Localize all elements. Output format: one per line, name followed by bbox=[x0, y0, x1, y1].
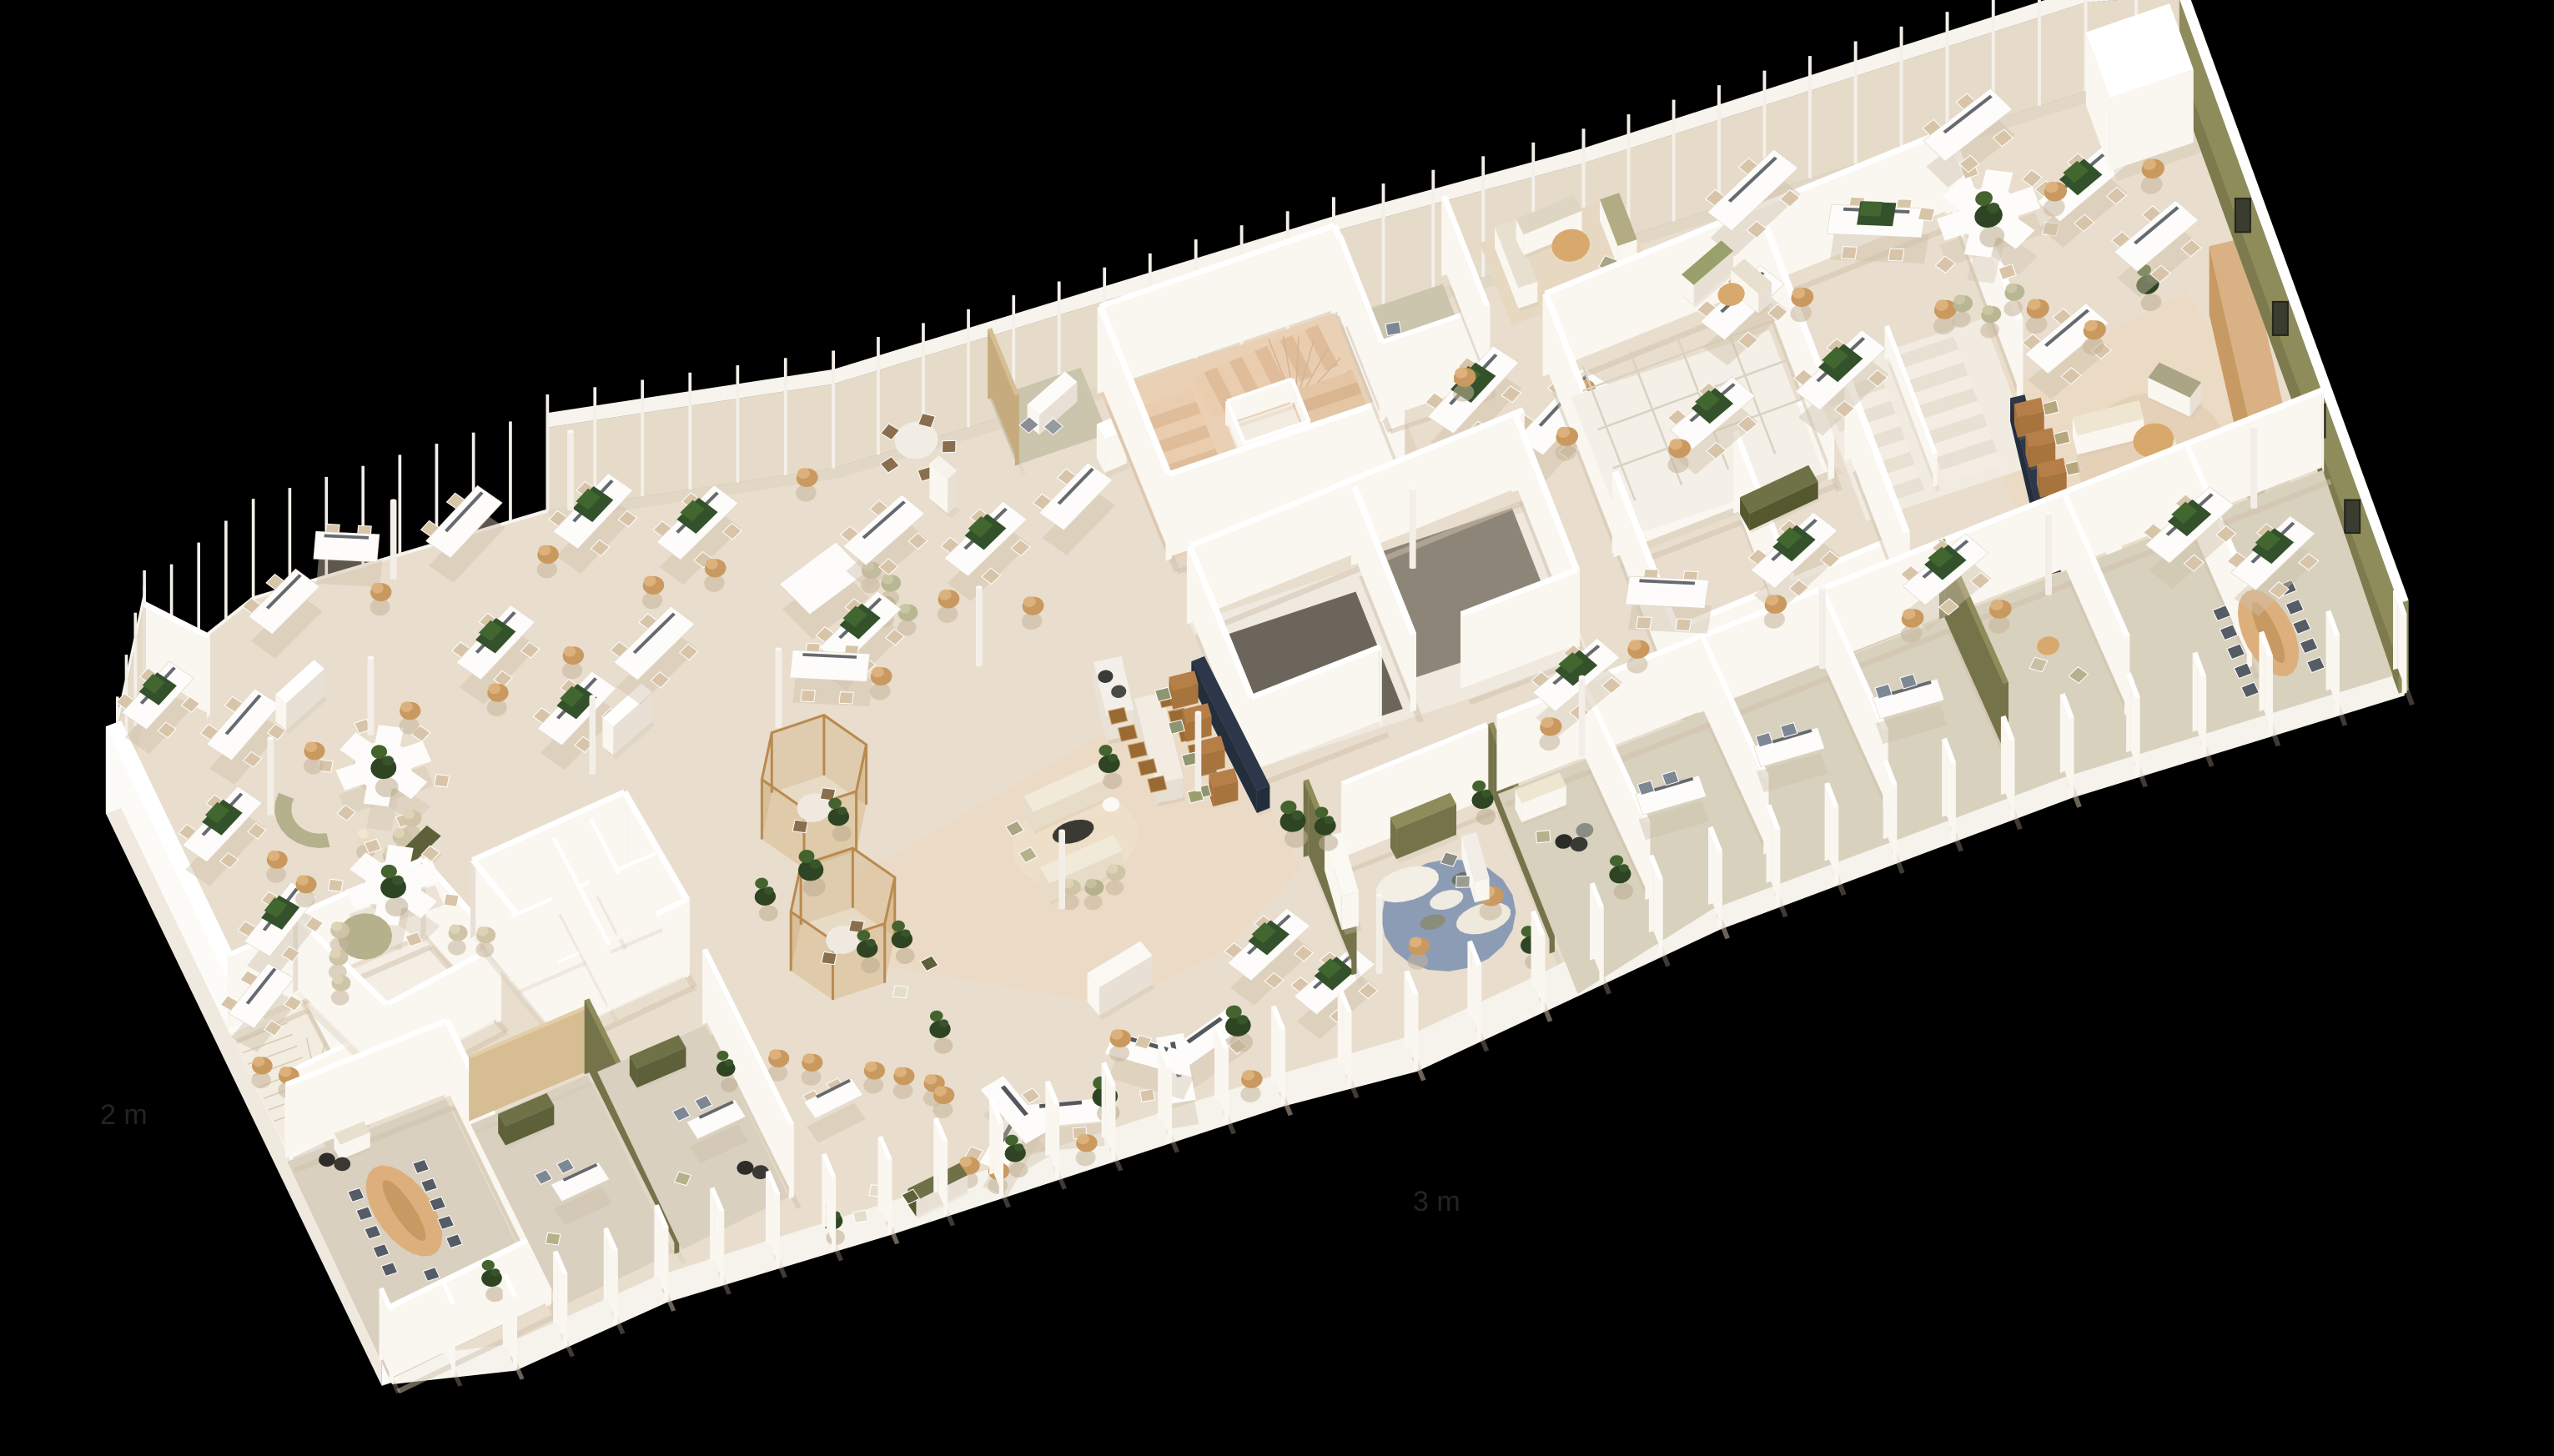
svg-text:2 m: 2 m bbox=[100, 1099, 148, 1131]
svg-text:3 m: 3 m bbox=[1413, 1186, 1461, 1218]
